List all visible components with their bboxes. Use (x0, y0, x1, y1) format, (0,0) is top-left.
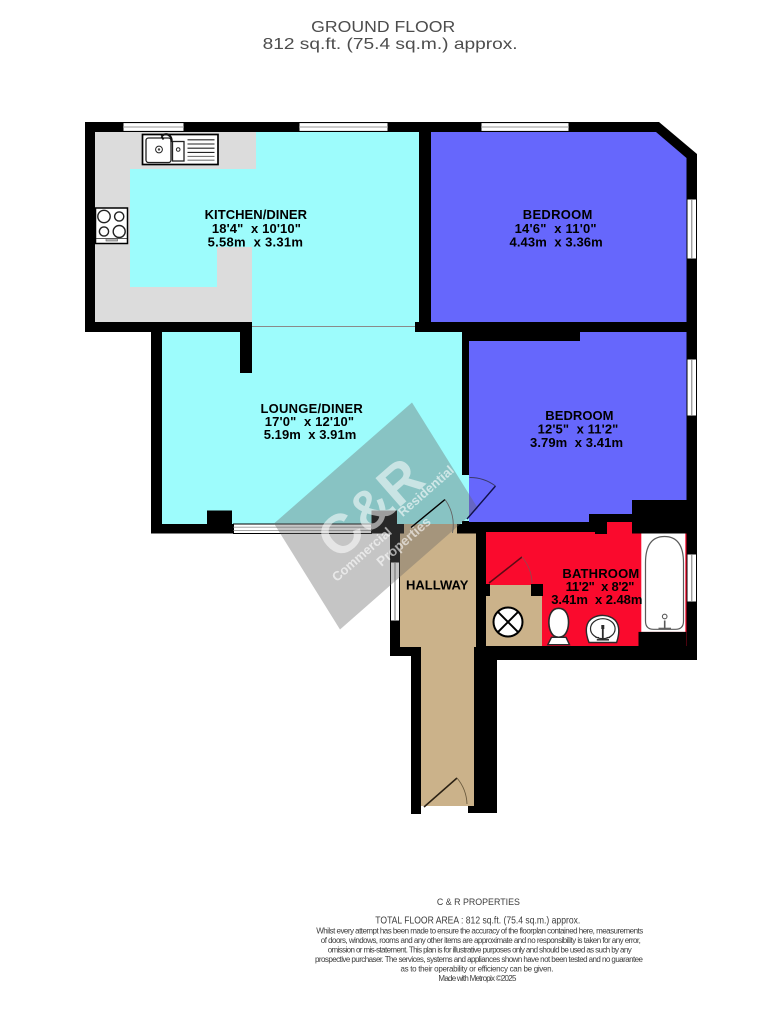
svg-text:KITCHEN/DINER: KITCHEN/DINER (205, 207, 308, 222)
svg-text:BEDROOM: BEDROOM (523, 207, 593, 222)
svg-text:as to their operability or eff: as to their operability or efficiency ca… (401, 965, 554, 974)
svg-text:omission or mis-statement. Thi: omission or mis-statement. This plan is … (328, 946, 632, 955)
svg-text:3.41m x 2.48m: 3.41m x 2.48m (551, 592, 642, 607)
svg-text:of doors, windows, rooms and a: of doors, windows, rooms and any other i… (321, 936, 641, 945)
svg-text:4.43m x 3.36m: 4.43m x 3.36m (510, 235, 603, 250)
svg-text:HALLWAY: HALLWAY (406, 578, 469, 593)
svg-text:5.19m x 3.91m: 5.19m x 3.91m (264, 427, 357, 442)
svg-text:TOTAL FLOOR AREA : 812 sq.ft.: TOTAL FLOOR AREA : 812 sq.ft. (75.4 sq.m… (375, 915, 580, 927)
svg-text:Whilst every attempt has been: Whilst every attempt has been made to en… (316, 927, 643, 936)
svg-text:Made with Metropix ©2025: Made with Metropix ©2025 (438, 974, 517, 983)
svg-text:prospective purchaser. The ser: prospective purchaser. The services, sys… (315, 955, 644, 964)
svg-text:C & R PROPERTIES: C & R PROPERTIES (437, 897, 520, 907)
svg-text:5.58m x 3.31m: 5.58m x 3.31m (208, 234, 303, 249)
svg-text:812 sq.ft. (75.4 sq.m.) approx: 812 sq.ft. (75.4 sq.m.) approx. (263, 36, 518, 53)
svg-text:3.79m x 3.41m: 3.79m x 3.41m (530, 435, 623, 450)
svg-text:GROUND FLOOR: GROUND FLOOR (311, 19, 455, 36)
